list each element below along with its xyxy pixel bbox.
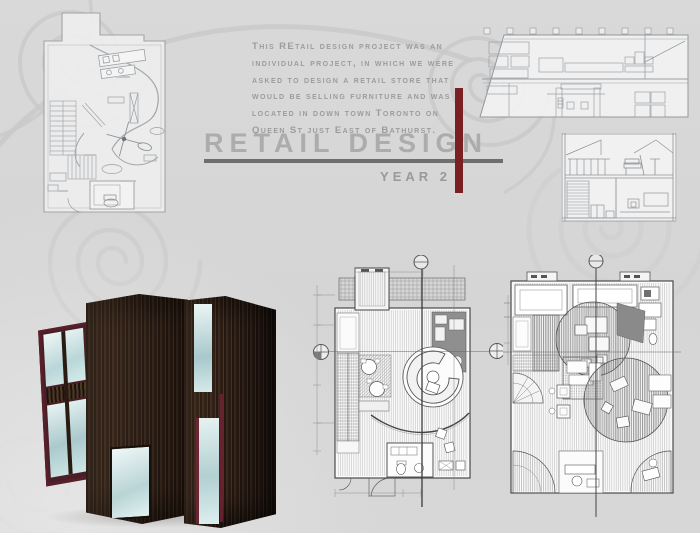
cafe-area xyxy=(359,355,391,397)
intro-paragraph: This REtail design project was an indivi… xyxy=(252,39,454,140)
intro-line: located in down town Toronto on xyxy=(252,106,454,123)
glass-strip xyxy=(196,418,219,524)
roof-joists xyxy=(484,28,673,34)
wood-panel-right xyxy=(184,296,276,528)
detailed-floor-plan-1 xyxy=(311,255,503,511)
accent-red-bar xyxy=(455,88,463,193)
wood-panel-center xyxy=(86,294,188,524)
intro-line: This REtail design project was an xyxy=(252,39,454,56)
entry-door-swing xyxy=(339,478,395,496)
detailed-floor-plan-2 xyxy=(503,255,689,517)
wood-storefront-render xyxy=(38,284,270,530)
red-trim-edge xyxy=(220,394,223,522)
entry-vestibule xyxy=(355,268,389,310)
building-elevation-drawing xyxy=(477,26,693,120)
intro-line: would be selling furniture and was xyxy=(252,89,454,106)
intro-line: asked to design a retail store that xyxy=(252,73,454,90)
glass-pane xyxy=(110,444,151,520)
washroom xyxy=(387,443,433,477)
intro-line: individual project, in which we were xyxy=(252,56,454,73)
portfolio-page: This REtail design project was an indivi… xyxy=(0,0,700,533)
cross-section-drawing xyxy=(558,131,680,223)
glass-strip xyxy=(194,304,212,392)
ground-floor-plan-drawing xyxy=(24,5,176,217)
roof-tabs xyxy=(527,272,650,281)
back-room xyxy=(90,181,134,209)
stair-run xyxy=(337,353,359,453)
